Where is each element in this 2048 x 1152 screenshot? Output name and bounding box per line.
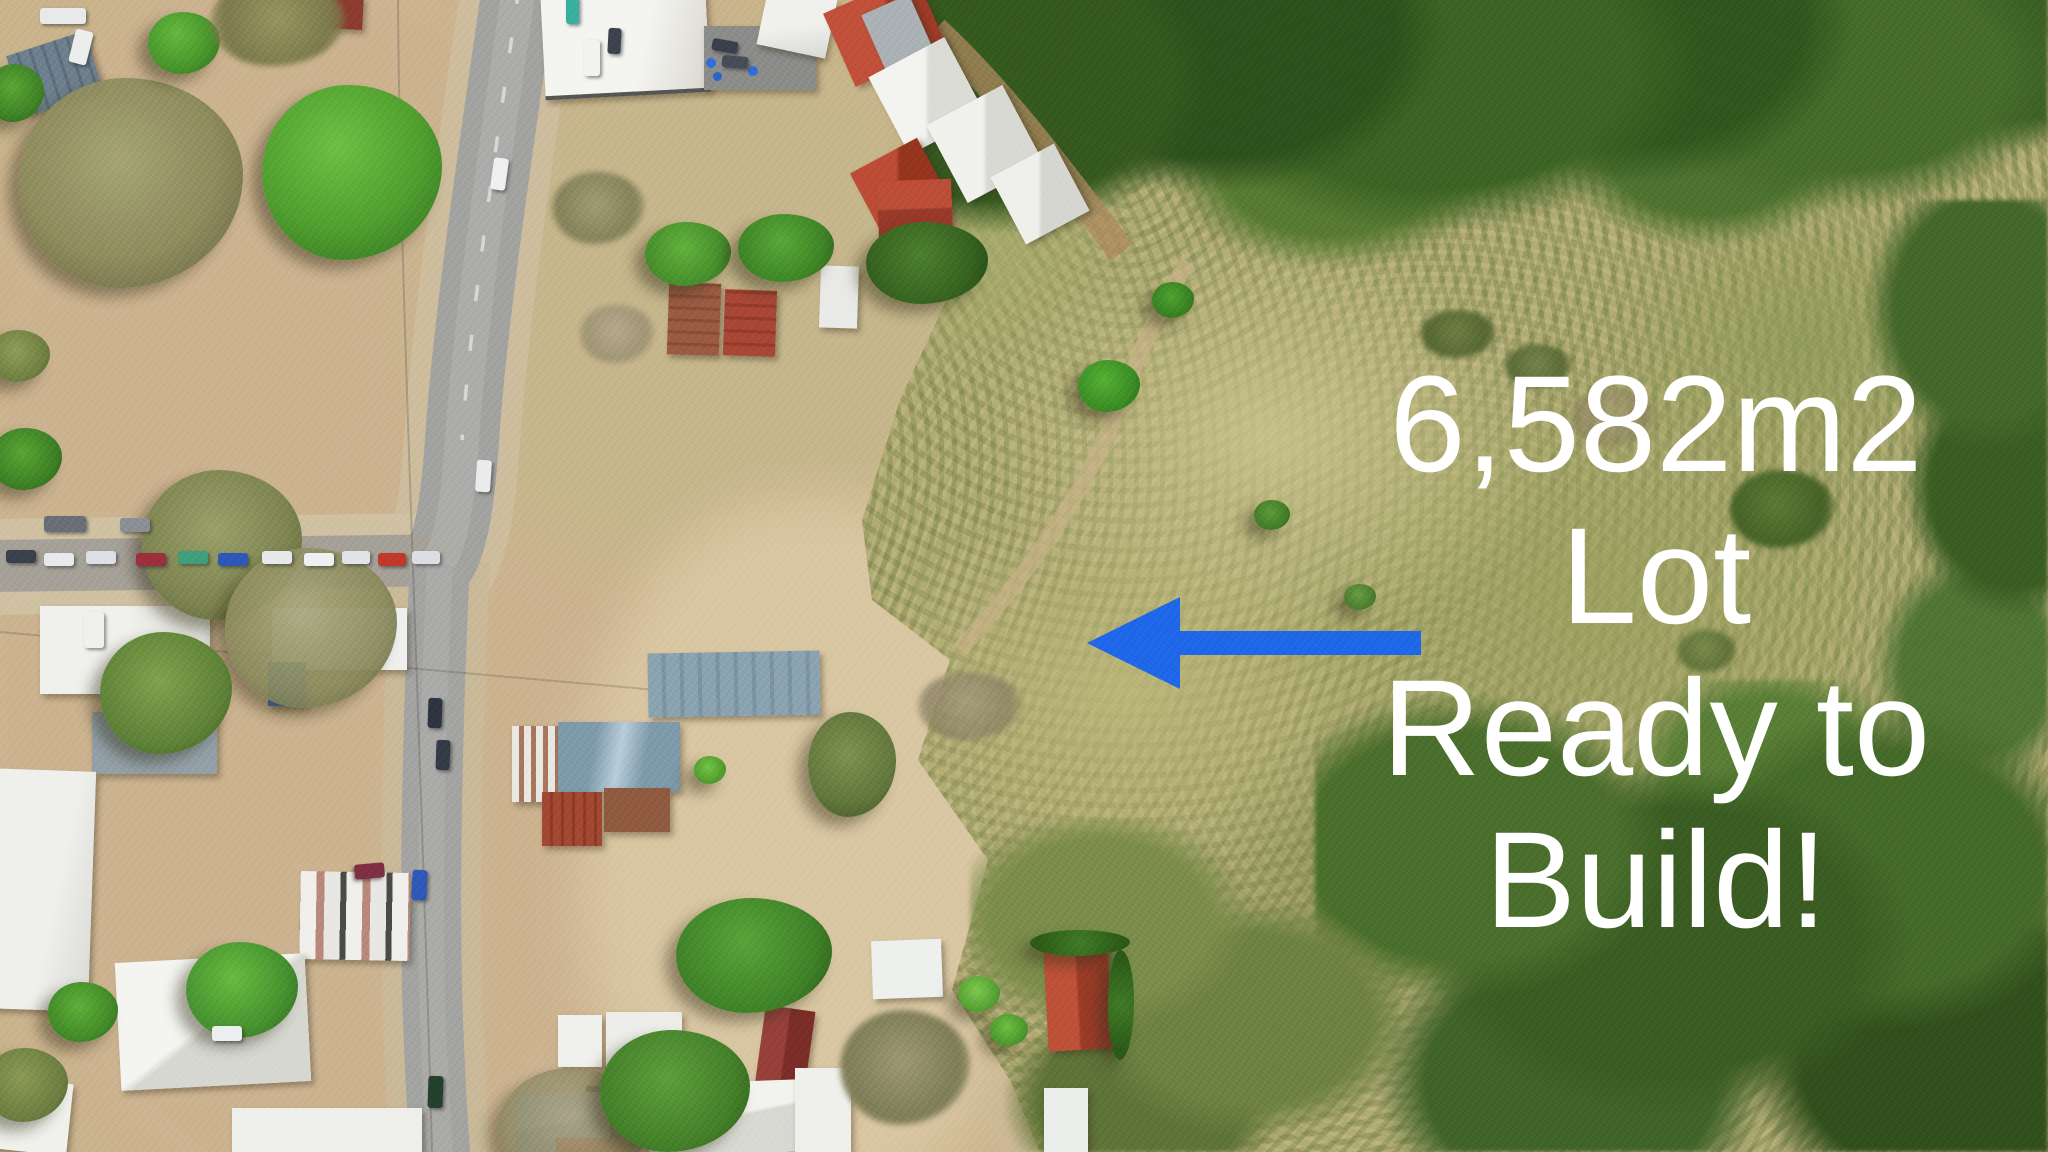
aerial-photo: 6,582m2 Lot Ready to Build! xyxy=(0,0,2048,1152)
caption-line-ready: Ready to xyxy=(1206,653,2048,805)
caption-line-lot: Lot xyxy=(1206,501,2048,653)
caption-line-build: Build! xyxy=(1206,805,2048,957)
caption-overlay: 6,582m2 Lot Ready to Build! xyxy=(1206,349,2048,957)
caption-line-area: 6,582m2 xyxy=(1206,349,2048,501)
